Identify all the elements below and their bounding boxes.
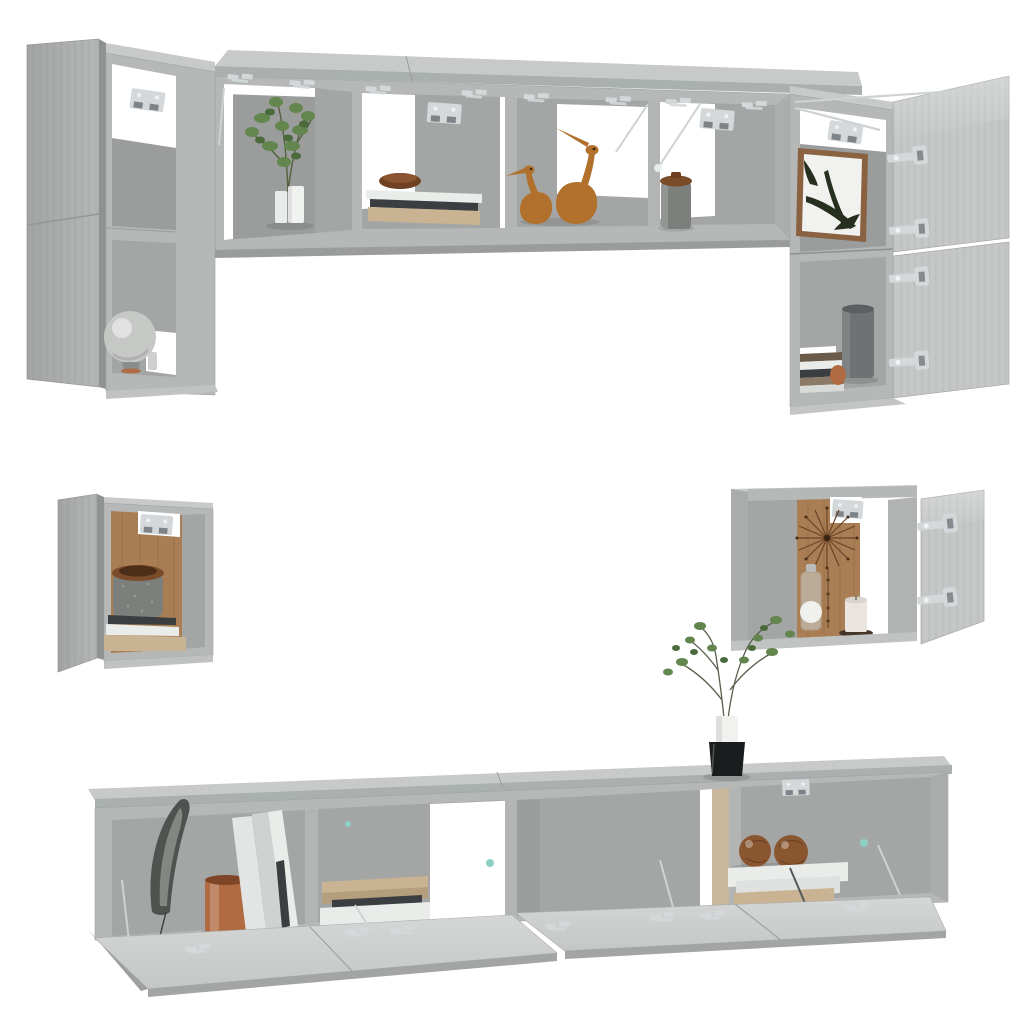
compartment-books	[362, 93, 500, 229]
open-door-right	[921, 490, 984, 644]
framed-leaf-print	[796, 148, 868, 242]
compartment-spheres	[728, 777, 930, 910]
compartment-empty	[517, 788, 729, 916]
open-door-right-bottom	[893, 242, 1009, 398]
granite-pot	[112, 565, 164, 617]
compartment-plant	[224, 84, 362, 240]
product-photo	[0, 0, 1024, 1024]
compartment-stacked-books	[318, 800, 500, 926]
compartment-jar	[658, 94, 790, 240]
tv-cabinet-set-illustration	[0, 0, 1024, 1024]
compartment-ducks	[506, 98, 648, 227]
left-stacked-cabinets	[27, 39, 218, 399]
compartment-feather	[112, 799, 305, 936]
glass-jar	[800, 564, 822, 630]
top-horizontal-cabinets	[215, 50, 862, 258]
left-small-cabinet	[58, 494, 213, 672]
right-small-cabinet	[731, 485, 984, 651]
